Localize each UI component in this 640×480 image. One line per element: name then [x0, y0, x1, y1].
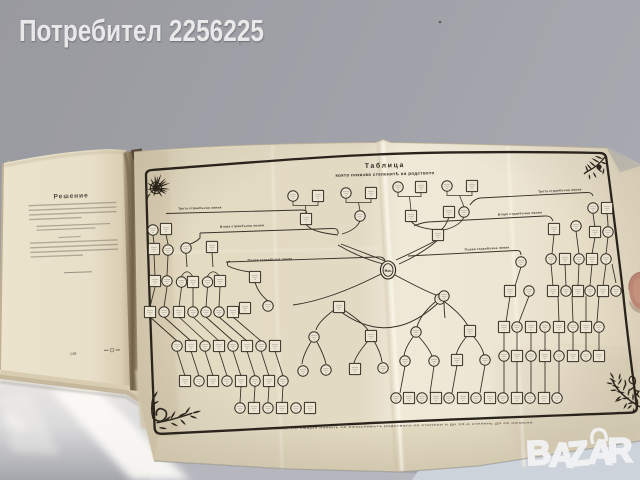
svg-text:Таблица: Таблица: [365, 161, 405, 170]
svg-text:146: 146: [70, 351, 78, 356]
svg-text:R: R: [607, 432, 632, 470]
svg-text:Решение: Решение: [53, 192, 88, 200]
svg-text:Потребител 2256225: Потребител 2256225: [19, 14, 264, 48]
svg-text:Язъ: Язъ: [385, 269, 392, 273]
